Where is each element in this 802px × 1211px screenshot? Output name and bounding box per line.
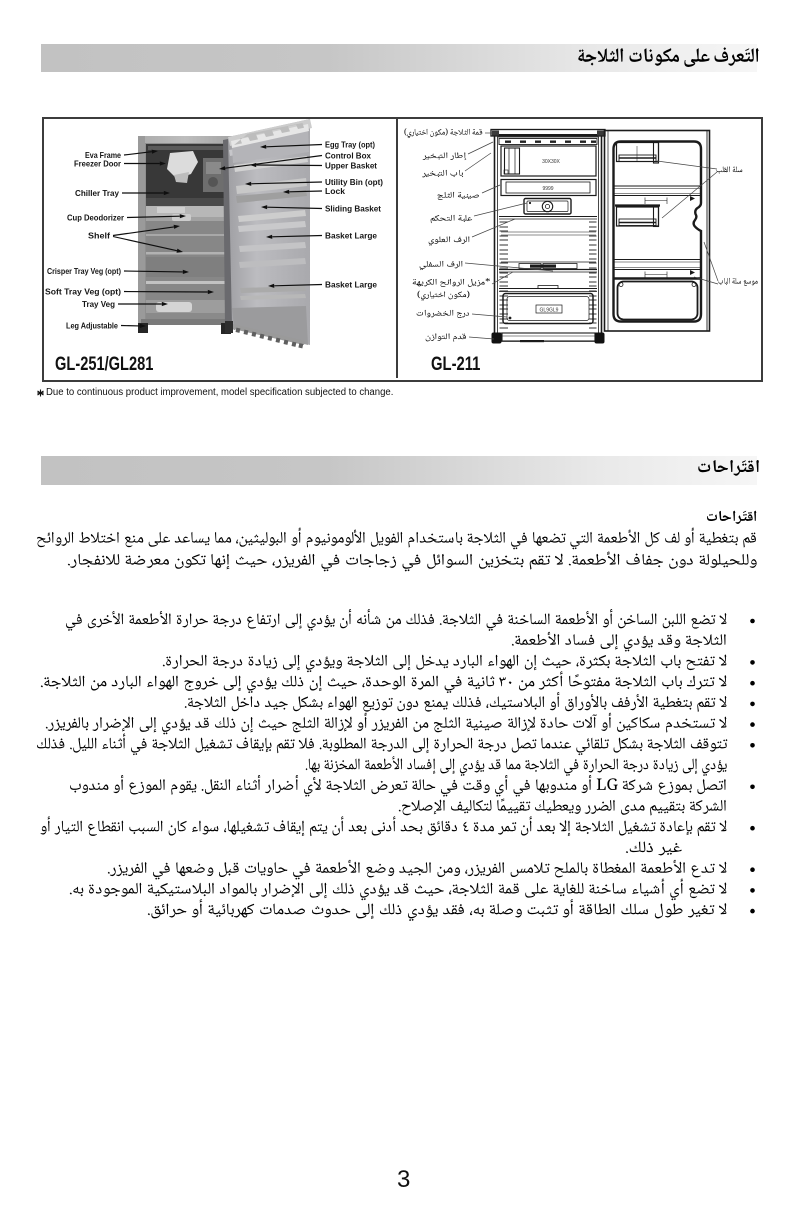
svg-text:9999: 9999 [542, 186, 553, 192]
svg-text:GL9GL9: GL9GL9 [540, 308, 559, 314]
svg-text:Lock: Lock [325, 187, 345, 196]
svg-text:Crisper Tray Veg (opt): Crisper Tray Veg (opt) [47, 267, 121, 276]
svg-text:Egg Tray (opt): Egg Tray (opt) [325, 140, 375, 149]
svg-text:Control Box: Control Box [325, 151, 371, 160]
svg-text:Cup Deodorizer: Cup Deodorizer [67, 213, 125, 222]
svg-text:Upper Basket: Upper Basket [325, 161, 377, 170]
svg-text:Leg Adjustable: Leg Adjustable [66, 321, 118, 330]
svg-text:30X30X: 30X30X [542, 159, 560, 165]
svg-text:Shelf: Shelf [88, 231, 110, 240]
svg-text:Basket Large: Basket Large [325, 280, 377, 289]
svg-text:Soft Tray Veg (opt): Soft Tray Veg (opt) [45, 287, 121, 296]
svg-text:Sliding Basket: Sliding Basket [325, 204, 381, 213]
svg-text:Utility Bin (opt): Utility Bin (opt) [325, 178, 383, 187]
svg-text:Basket Large: Basket Large [325, 231, 377, 240]
svg-text:Tray Veg: Tray Veg [82, 300, 115, 309]
svg-text:Chiller Tray: Chiller Tray [75, 189, 119, 198]
svg-text:Freezer Door: Freezer Door [74, 159, 122, 168]
